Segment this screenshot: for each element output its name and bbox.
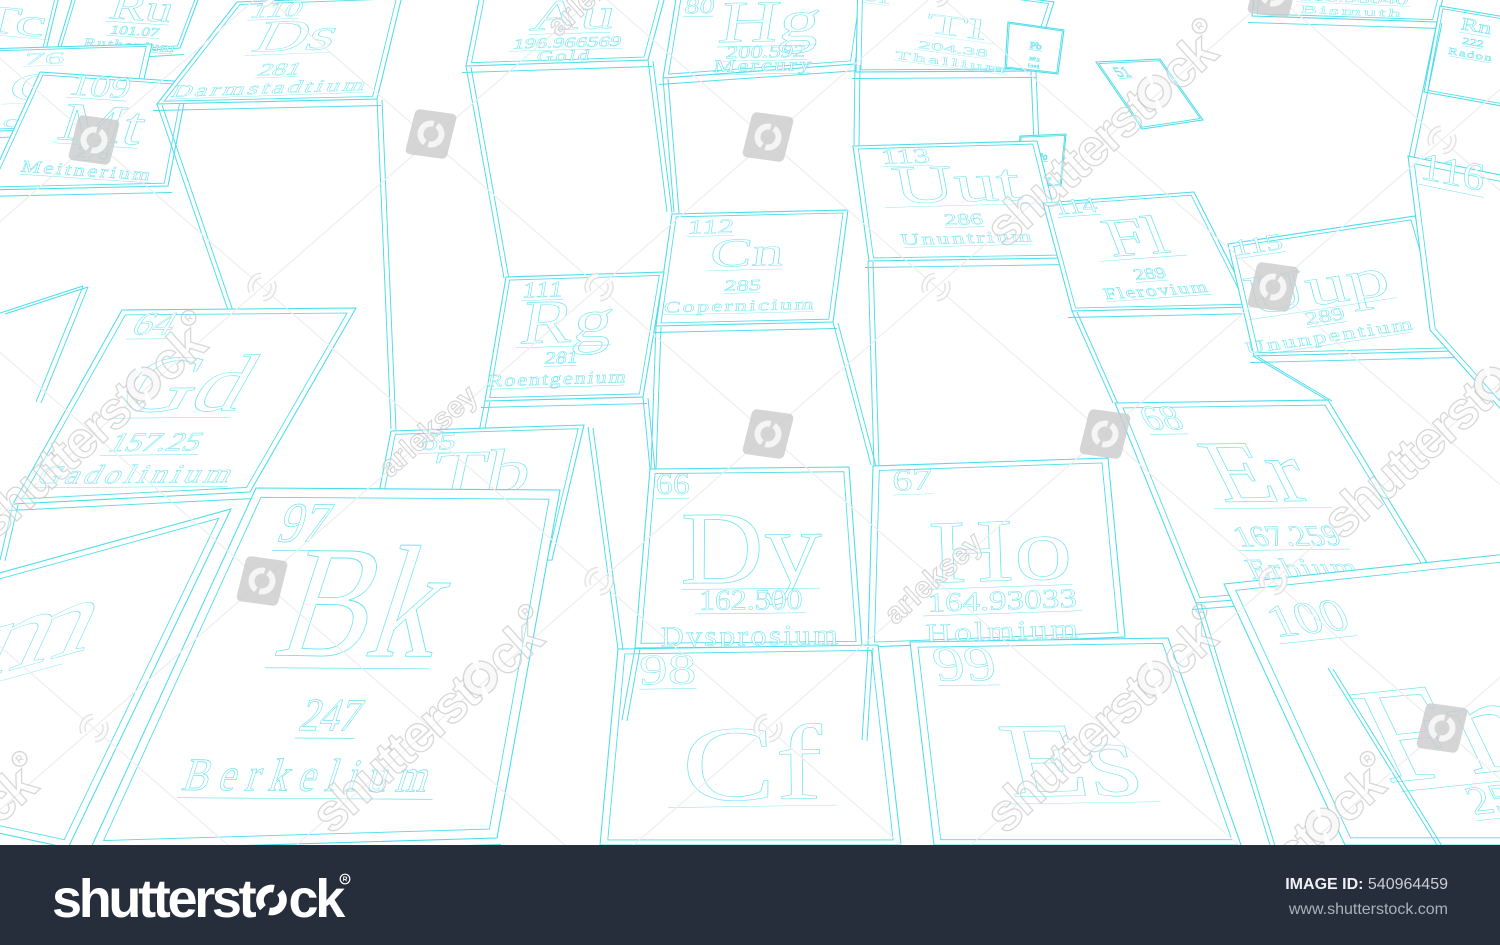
svg-text:80: 80 xyxy=(683,0,717,18)
svg-text:Mercury: Mercury xyxy=(712,54,815,76)
svg-text:162.500: 162.500 xyxy=(699,583,803,616)
svg-text:Cn: Cn xyxy=(707,229,787,275)
svg-text:ck: ck xyxy=(289,869,347,929)
svg-text:285: 285 xyxy=(723,277,762,294)
svg-text:IMAGE ID: 540964459: IMAGE ID: 540964459 xyxy=(1285,876,1448,893)
svg-text:www.shutterstock.com: www.shutterstock.com xyxy=(1288,901,1448,918)
svg-text:98: 98 xyxy=(639,645,697,694)
svg-text:281: 281 xyxy=(543,348,579,368)
svg-text:shutterst: shutterst xyxy=(52,869,257,929)
svg-text:99: 99 xyxy=(927,637,1002,692)
svg-text:164.93033: 164.93033 xyxy=(927,583,1078,618)
svg-text:67: 67 xyxy=(892,462,933,498)
